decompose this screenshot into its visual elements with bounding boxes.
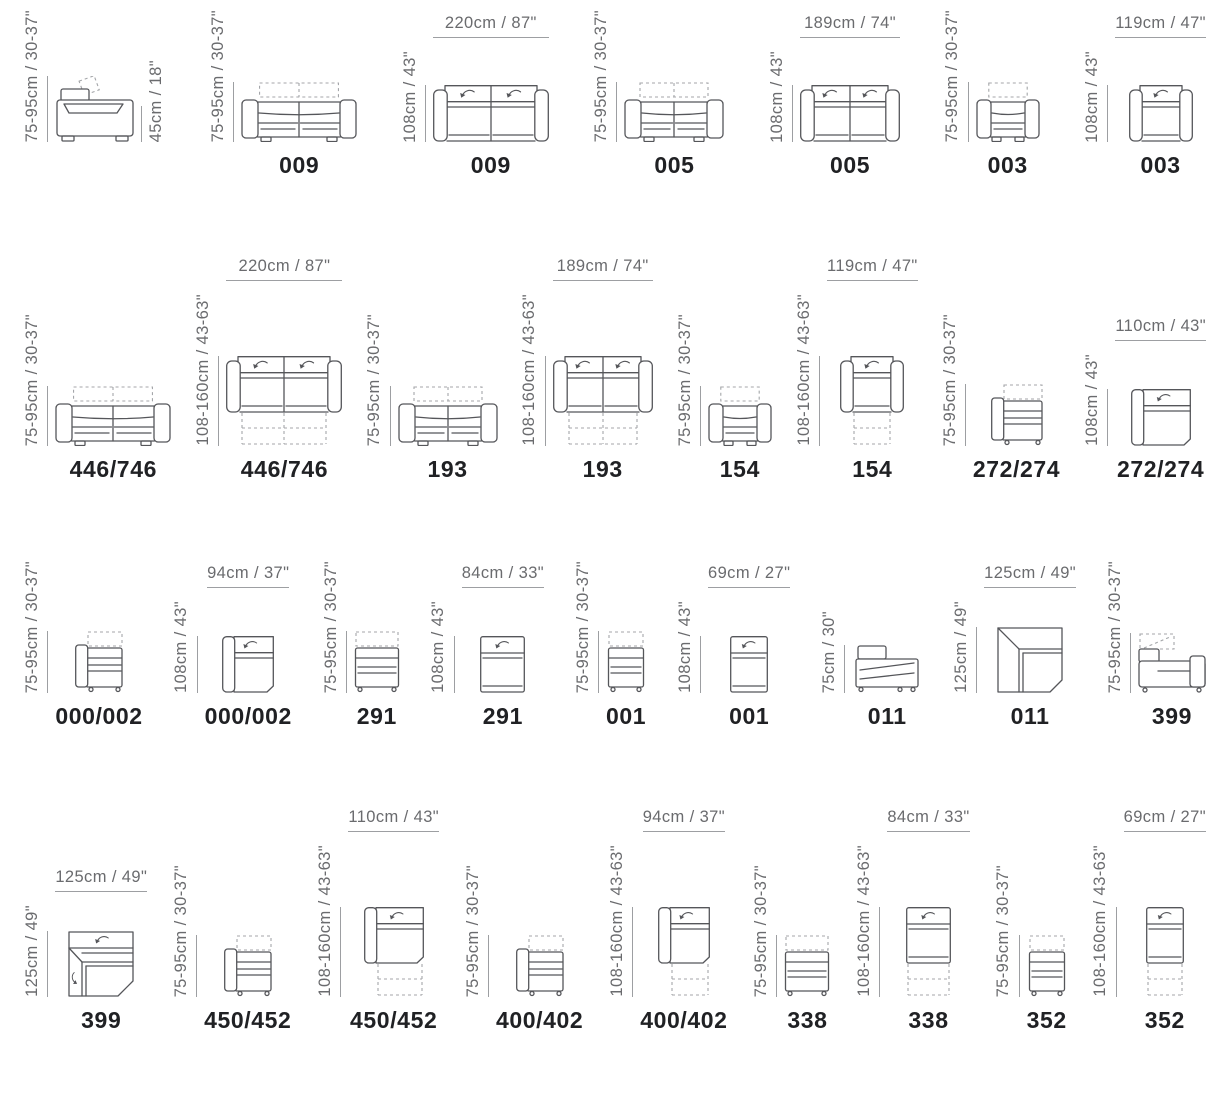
dimension-line (55, 891, 147, 892)
height-dimension: 75-95cm / 30-37" (465, 865, 489, 997)
dimension-line (1107, 389, 1108, 446)
width-dimension-label: 125cm / 49" (55, 868, 147, 887)
dimension-line (632, 907, 633, 997)
height-dimension: 75-95cm / 30-37" (575, 561, 599, 693)
dimension-line (47, 631, 48, 693)
diagram-cell: 84cm / 33"108cm / 43"291 (430, 564, 544, 730)
height-dimension-label: 75-95cm / 30-37" (24, 314, 41, 446)
dimension-line (598, 631, 599, 693)
height-dimension-label: 108-160cm / 43-63" (796, 294, 813, 446)
height-dimension-label: 108-160cm / 43-63" (195, 294, 212, 446)
height-dimension-label: 108-160cm / 43-63" (1092, 845, 1109, 997)
dimension-line (827, 280, 918, 281)
headrest-adjust-arrow-icon (460, 91, 474, 98)
width-dimension-label: 94cm / 37" (643, 808, 725, 827)
width-dimension: 189cm / 74" (800, 14, 900, 38)
headrest-adjust-arrow-icon (575, 361, 589, 368)
dimension-line (553, 280, 653, 281)
diagram-cell: 75-95cm / 30-37"450/452 (173, 865, 292, 1034)
diagram-cell: 75-95cm / 30-37"291 (323, 561, 400, 730)
width-dimension: 84cm / 33" (462, 564, 544, 588)
dimension-line (1115, 37, 1206, 38)
front-sofa-drawing (55, 386, 171, 446)
diagram-cell: 119cm / 47"108cm / 43"003 (1084, 14, 1206, 180)
height-dimension: 108-160cm / 43-63" (796, 294, 820, 446)
width-dimension-label: 84cm / 33" (887, 808, 969, 827)
side-chaise-drawing (1138, 633, 1206, 693)
width-dimension-label: 119cm / 47" (1115, 14, 1206, 33)
width-dimension: 69cm / 27" (708, 564, 790, 588)
side-corner-drawing (852, 645, 922, 693)
dimension-line (984, 587, 1076, 588)
model-number-label: 272/274 (973, 456, 1060, 483)
model-number-label: 352 (1027, 1007, 1067, 1034)
top-corner-drawing (997, 627, 1063, 693)
model-number-label: 011 (868, 703, 907, 730)
top-sofa-drawing (433, 85, 549, 142)
width-dimension: 119cm / 47" (827, 257, 918, 281)
height-dimension: 108cm / 43" (1084, 354, 1108, 446)
top-armchair-drawing (840, 356, 904, 446)
height-dimension: 108cm / 43" (173, 601, 197, 693)
height-dimension-label: 125cm / 49" (24, 905, 41, 997)
dimension-line (226, 280, 342, 281)
diagram-cell: 75-95cm / 30-37"154 (677, 314, 772, 483)
width-dimension: 125cm / 49" (55, 868, 147, 892)
model-number-label: 001 (729, 703, 769, 730)
headrest-adjust-arrow-icon (1158, 913, 1171, 920)
height-dimension: 125cm / 49" (24, 905, 48, 997)
model-number-label: 193 (428, 456, 468, 483)
headrest-adjust-arrow-icon (496, 642, 509, 649)
dimension-line (792, 85, 793, 142)
dimension-line (643, 831, 725, 832)
diagram-cell: 94cm / 37"108cm / 43"000/002 (173, 564, 292, 730)
dimension-line (348, 831, 439, 832)
dimension-line (47, 931, 48, 997)
height-dimension-label: 75-95cm / 30-37" (677, 314, 694, 446)
headrest-adjust-arrow-icon (679, 913, 692, 920)
headrest-adjust-arrow-icon (506, 91, 520, 98)
seat-height-dimension: 45cm / 18" (141, 60, 165, 142)
diagram-cell: 189cm / 74"108-160cm / 43-63"193 (521, 257, 652, 483)
height-dimension-label: 108cm / 43" (430, 601, 447, 693)
model-number-label: 005 (654, 152, 694, 179)
headrest-adjust-arrow-icon (615, 361, 629, 368)
model-number-label: 400/402 (496, 1007, 583, 1034)
width-dimension-label: 110cm / 43" (348, 808, 439, 827)
headrest-adjust-arrow-icon (95, 937, 108, 944)
front-sofa-drawing (624, 82, 724, 142)
diagram-row: 75-95cm / 30-37"45cm / 18"75-95cm / 30-3… (24, 10, 1206, 179)
height-dimension-label: 75-95cm / 30-37" (465, 865, 482, 997)
height-dimension: 108cm / 43" (677, 601, 701, 693)
diagram-cell: 75-95cm / 30-37"001 (575, 561, 647, 730)
model-number-label: 291 (483, 703, 523, 730)
model-number-label: 009 (279, 152, 319, 179)
height-dimension-label: 125cm / 49" (953, 601, 970, 693)
dimension-line (776, 935, 777, 997)
diagram-cell: 75-95cm / 30-37"400/402 (465, 865, 584, 1034)
headrest-adjust-arrow-icon (244, 642, 257, 649)
diagram-row: 75-95cm / 30-37"000/00294cm / 37"108cm /… (24, 561, 1206, 730)
dimension-line (879, 907, 880, 997)
width-dimension-label: 189cm / 74" (557, 257, 649, 276)
seat-height-label: 45cm / 18" (148, 60, 165, 142)
diagram-cell: 119cm / 47"108-160cm / 43-63"154 (796, 257, 918, 483)
width-dimension-label: 119cm / 47" (827, 257, 918, 276)
height-dimension: 108-160cm / 43-63" (521, 294, 545, 446)
dimension-line (965, 384, 966, 446)
height-dimension: 108-160cm / 43-63" (317, 845, 341, 997)
diagram-cell: 75-95cm / 30-37"003 (944, 10, 1039, 179)
height-dimension-label: 75-95cm / 30-37" (942, 314, 959, 446)
model-number-label: 011 (1011, 703, 1050, 730)
diagram-cell: 75-95cm / 30-37"000/002 (24, 561, 143, 730)
height-dimension-label: 75-95cm / 30-37" (366, 314, 383, 446)
dimension-line (1107, 85, 1108, 142)
dimension-line (47, 386, 48, 446)
height-dimension: 75-95cm / 30-37" (210, 10, 234, 142)
dimension-line (346, 631, 347, 693)
diagram-cell: 75-95cm / 30-37"399 (1107, 561, 1206, 730)
model-number-label: 193 (583, 456, 623, 483)
model-number-label: 001 (606, 703, 646, 730)
front-armchair-drawing (708, 386, 772, 446)
top-sofa-drawing (800, 85, 900, 142)
front-module-drawing (1028, 935, 1066, 997)
headrest-adjust-arrow-icon (865, 361, 879, 368)
width-dimension: 110cm / 43" (348, 808, 439, 832)
diagram-cell: 69cm / 27"108-160cm / 43-63"352 (1092, 808, 1206, 1034)
diagram-cell: 75-95cm / 30-37"005 (593, 10, 724, 179)
model-number-label: 399 (81, 1007, 121, 1034)
diagram-cell: 189cm / 74"108cm / 43"005 (769, 14, 900, 180)
model-number-label: 399 (1152, 703, 1192, 730)
top-module-drawing (1146, 907, 1184, 997)
width-dimension: 94cm / 37" (643, 808, 725, 832)
headrest-adjust-arrow-icon (389, 913, 402, 920)
diagram-row: 75-95cm / 30-37"446/746220cm / 87"108-16… (24, 257, 1206, 483)
height-dimension-label: 75-95cm / 30-37" (575, 561, 592, 693)
dimension-line (700, 386, 701, 446)
diagram-cell: 125cm / 49"125cm / 49"011 (953, 564, 1076, 730)
dimension-line (976, 627, 977, 693)
height-dimension-label: 108cm / 43" (173, 601, 190, 693)
height-dimension: 75-95cm / 30-37" (24, 561, 48, 693)
diagram-cell: 84cm / 33"108-160cm / 43-63"338 (856, 808, 970, 1034)
width-dimension: 94cm / 37" (207, 564, 289, 588)
width-dimension-label: 84cm / 33" (462, 564, 544, 583)
front-sofa-drawing (241, 82, 357, 142)
dimension-line (141, 106, 142, 142)
height-dimension-label: 108-160cm / 43-63" (521, 294, 538, 446)
height-dimension: 75-95cm / 30-37" (944, 10, 968, 142)
dimension-line (340, 907, 341, 997)
model-number-label: 352 (1145, 1007, 1185, 1034)
front-sofa-drawing (398, 386, 498, 446)
height-dimension-label: 75-95cm / 30-37" (1107, 561, 1124, 693)
height-dimension: 108cm / 43" (1084, 51, 1108, 143)
dimension-line (454, 636, 455, 693)
model-number-label: 005 (830, 152, 870, 179)
dimension-line (968, 82, 969, 142)
height-dimension: 75-95cm / 30-37" (323, 561, 347, 693)
diagram-cell: 75-95cm / 30-37"338 (753, 865, 830, 1034)
top-corner-chaise-drawing (68, 931, 134, 997)
headrest-adjust-arrow-icon (1153, 91, 1167, 98)
model-number-label: 154 (852, 456, 892, 483)
diagram-cell: 69cm / 27"108cm / 43"001 (677, 564, 791, 730)
height-dimension-label: 75-95cm / 30-37" (995, 865, 1012, 997)
top-module-drawing (480, 636, 525, 693)
height-dimension: 75-95cm / 30-37" (366, 314, 390, 446)
height-dimension: 75-95cm / 30-37" (1107, 561, 1131, 693)
height-dimension-label: 108cm / 43" (1084, 51, 1101, 143)
height-dimension-label: 75-95cm / 30-37" (944, 10, 961, 142)
width-dimension: 189cm / 74" (553, 257, 653, 281)
width-dimension-label: 110cm / 43" (1115, 317, 1206, 336)
height-dimension: 75-95cm / 30-37" (995, 865, 1019, 997)
diagram-cell: 75cm / 30"011 (821, 611, 922, 730)
diagram-cell: 75-95cm / 30-37"009 (210, 10, 357, 179)
height-dimension-label: 108cm / 43" (1084, 354, 1101, 446)
height-dimension: 75-95cm / 30-37" (942, 314, 966, 446)
model-number-label: 338 (787, 1007, 827, 1034)
height-dimension: 75-95cm / 30-37" (677, 314, 701, 446)
side-sofa-drawing (55, 76, 135, 142)
diagram-cell: 110cm / 43"108-160cm / 43-63"450/452 (317, 808, 439, 1034)
model-number-label: 154 (720, 456, 760, 483)
width-dimension-label: 189cm / 74" (804, 14, 896, 33)
headrest-adjust-arrow-icon (254, 361, 268, 368)
top-sofa-drawing (553, 356, 653, 446)
diagram-cell: 75-95cm / 30-37"352 (995, 865, 1067, 1034)
width-dimension: 110cm / 43" (1115, 317, 1206, 341)
top-armchair-drawing (1129, 85, 1193, 142)
headrest-adjust-arrow-icon (300, 361, 314, 368)
model-number-label: 450/452 (350, 1007, 437, 1034)
height-dimension: 75-95cm / 30-37" (753, 865, 777, 997)
height-dimension-label: 75cm / 30" (821, 611, 838, 693)
top-module-arm-drawing (364, 907, 424, 997)
width-dimension: 220cm / 87" (226, 257, 342, 281)
diagram-cell: 75-95cm / 30-37"446/746 (24, 314, 171, 483)
diagram-cell: 220cm / 87"108-160cm / 43-63"446/746 (195, 257, 342, 483)
dimension-line (1130, 633, 1131, 693)
height-dimension: 75-95cm / 30-37" (24, 10, 48, 142)
dimension-line (616, 82, 617, 142)
height-dimension-label: 75-95cm / 30-37" (210, 10, 227, 142)
height-dimension: 125cm / 49" (953, 601, 977, 693)
front-module-drawing (354, 631, 400, 693)
width-dimension: 220cm / 87" (433, 14, 549, 38)
width-dimension-label: 220cm / 87" (445, 14, 537, 33)
width-dimension-label: 69cm / 27" (1124, 808, 1206, 827)
headrest-adjust-arrow-icon (71, 972, 79, 984)
width-dimension: 69cm / 27" (1124, 808, 1206, 832)
front-module-drawing (607, 631, 645, 693)
model-number-label: 272/274 (1117, 456, 1204, 483)
model-number-label: 003 (988, 152, 1028, 179)
height-dimension: 108-160cm / 43-63" (195, 294, 219, 446)
dimension-line (462, 587, 544, 588)
side-module-drawing (75, 631, 123, 693)
height-dimension-label: 108-160cm / 43-63" (317, 845, 334, 997)
dimension-line (1115, 340, 1206, 341)
headrest-adjust-arrow-icon (822, 91, 836, 98)
headrest-adjust-arrow-icon (1156, 395, 1169, 402)
height-dimension-label: 75-95cm / 30-37" (323, 561, 340, 693)
side-module-drawing (224, 935, 272, 997)
height-dimension-label: 108-160cm / 43-63" (609, 845, 626, 997)
diagram-cell: 75-95cm / 30-37"193 (366, 314, 497, 483)
width-dimension: 84cm / 33" (887, 808, 969, 832)
width-dimension-label: 94cm / 37" (207, 564, 289, 583)
headrest-adjust-arrow-icon (862, 91, 876, 98)
diagram-cell: 94cm / 37"108-160cm / 43-63"400/402 (609, 808, 728, 1034)
model-number-label: 450/452 (204, 1007, 291, 1034)
height-dimension: 75-95cm / 30-37" (24, 314, 48, 446)
dimension-line (425, 85, 426, 142)
height-dimension-label: 75-95cm / 30-37" (24, 561, 41, 693)
height-dimension: 75-95cm / 30-37" (593, 10, 617, 142)
dimension-line (1019, 935, 1020, 997)
side-module-drawing (991, 384, 1043, 446)
dimension-line (700, 636, 701, 693)
height-dimension-label: 108cm / 43" (677, 601, 694, 693)
top-sofa-drawing (226, 356, 342, 446)
diagram-row: 125cm / 49"125cm / 49"39975-95cm / 30-37… (24, 808, 1206, 1034)
height-dimension: 108cm / 43" (402, 51, 426, 143)
model-number-label: 338 (908, 1007, 948, 1034)
dimension-diagram-grid: 75-95cm / 30-37"45cm / 18"75-95cm / 30-3… (0, 0, 1216, 1034)
headrest-adjust-arrow-icon (742, 642, 755, 649)
height-dimension: 108cm / 43" (769, 51, 793, 143)
dimension-line (488, 935, 489, 997)
height-dimension: 108cm / 43" (430, 601, 454, 693)
height-dimension-label: 75-95cm / 30-37" (24, 10, 41, 142)
dimension-line (196, 935, 197, 997)
width-dimension-label: 220cm / 87" (239, 257, 331, 276)
height-dimension-label: 75-95cm / 30-37" (173, 865, 190, 997)
diagram-cell: 75-95cm / 30-37"272/274 (942, 314, 1061, 483)
dimension-line (545, 356, 546, 446)
model-number-label: 400/402 (640, 1007, 727, 1034)
dimension-line (233, 82, 234, 142)
model-number-label: 009 (471, 152, 511, 179)
top-module-drawing (730, 636, 768, 693)
dimension-line (800, 37, 900, 38)
headrest-adjust-arrow-icon (921, 913, 934, 920)
model-number-label: 446/746 (241, 456, 328, 483)
width-dimension-label: 125cm / 49" (984, 564, 1076, 583)
dimension-line (433, 37, 549, 38)
dimension-line (819, 356, 820, 446)
dimension-line (887, 831, 969, 832)
diagram-cell: 220cm / 87"108cm / 43"009 (402, 14, 549, 180)
height-dimension-label: 108-160cm / 43-63" (856, 845, 873, 997)
model-number-label: 003 (1141, 152, 1181, 179)
height-dimension-label: 108cm / 43" (769, 51, 786, 143)
top-module-drawing (906, 907, 951, 997)
diagram-cell: 110cm / 43"108cm / 43"272/274 (1084, 317, 1206, 483)
dimension-line (197, 636, 198, 693)
front-module-drawing (784, 935, 830, 997)
height-dimension-label: 75-95cm / 30-37" (753, 865, 770, 997)
top-module-arm-drawing (222, 636, 274, 693)
width-dimension: 125cm / 49" (984, 564, 1076, 588)
top-module-arm-drawing (1131, 389, 1191, 446)
width-dimension-label: 69cm / 27" (708, 564, 790, 583)
dimension-line (218, 356, 219, 446)
dimension-line (708, 587, 790, 588)
height-dimension: 75-95cm / 30-37" (173, 865, 197, 997)
dimension-line (207, 587, 289, 588)
diagram-cell: 75-95cm / 30-37"45cm / 18" (24, 10, 166, 179)
dimension-line (47, 76, 48, 142)
height-dimension: 75cm / 30" (821, 611, 845, 693)
dimension-line (1116, 907, 1117, 997)
front-armchair-drawing (976, 82, 1040, 142)
height-dimension: 108-160cm / 43-63" (856, 845, 880, 997)
model-number-label: 446/746 (70, 456, 157, 483)
height-dimension: 108-160cm / 43-63" (609, 845, 633, 997)
top-module-arm-drawing (658, 907, 710, 997)
height-dimension: 108-160cm / 43-63" (1092, 845, 1116, 997)
dimension-line (844, 645, 845, 693)
diagram-cell: 125cm / 49"125cm / 49"399 (24, 868, 147, 1034)
model-number-label: 291 (357, 703, 397, 730)
model-number-label: 000/002 (55, 703, 142, 730)
side-module-drawing (516, 935, 564, 997)
dimension-line (390, 386, 391, 446)
dimension-line (1124, 831, 1206, 832)
height-dimension-label: 75-95cm / 30-37" (593, 10, 610, 142)
width-dimension: 119cm / 47" (1115, 14, 1206, 38)
model-number-label: 000/002 (205, 703, 292, 730)
height-dimension-label: 108cm / 43" (402, 51, 419, 143)
